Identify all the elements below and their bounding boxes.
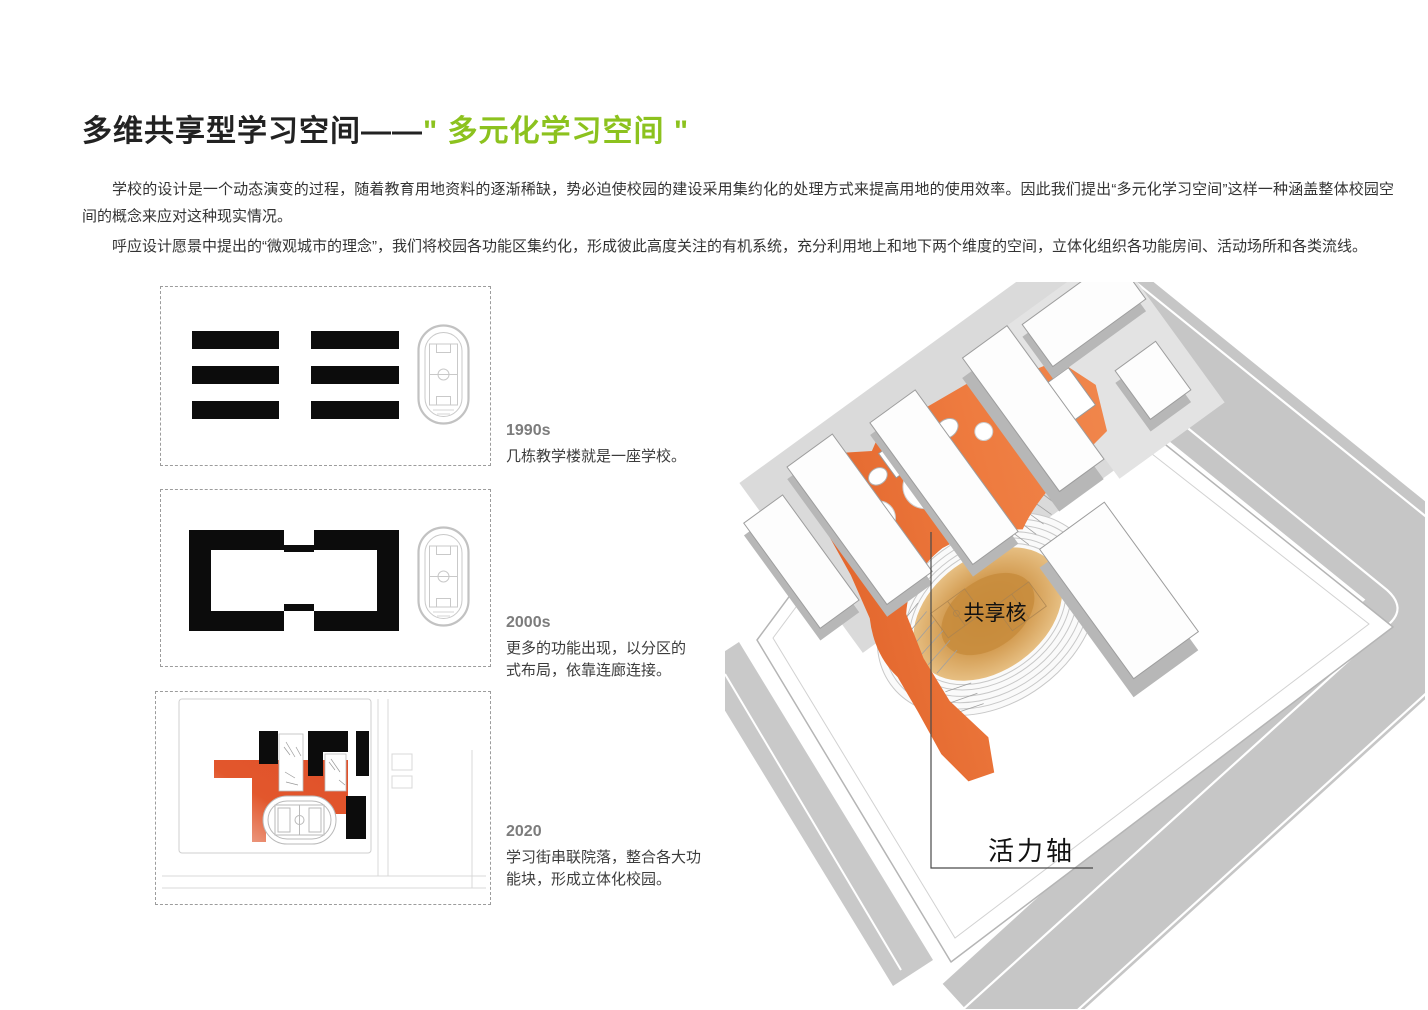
zoned-building-brackets <box>189 530 399 631</box>
era-label-2000s: 2000s <box>506 614 551 632</box>
diagram-1990s-bars <box>161 287 489 464</box>
era-desc-1990s: 几栋教学楼就是一座学校。 <box>506 446 716 468</box>
corridor-link <box>284 545 314 552</box>
era-label-2020: 2020 <box>506 823 542 841</box>
vitality-axis-label: 活力轴 <box>988 831 1075 868</box>
era-desc-2000s: 更多的功能出现，以分区的式布局，依靠连廊连接。 <box>506 638 692 682</box>
era-label-1990s: 1990s <box>506 422 551 440</box>
page-root: { "header": { "title_main": "多维共享型学习空间——… <box>0 0 1428 1010</box>
diagram-2000s-brackets <box>161 490 489 665</box>
running-track-icon <box>419 326 469 424</box>
corridor-link <box>284 604 314 611</box>
intro-paragraph-1: 学校的设计是一个动态演变的过程，随着教育用地资料的逐渐稀缺，势必迫使校园的建设采… <box>82 176 1394 230</box>
running-track-plan <box>263 796 336 844</box>
diagram-2020-siteplan <box>156 692 489 903</box>
running-track-icon <box>419 528 469 626</box>
title-main-text: 多维共享型学习空间—— <box>82 115 423 148</box>
campus-axonometric-illustration <box>725 282 1425 1009</box>
page-title: 多维共享型学习空间——" 多元化学习空间 " <box>82 106 689 150</box>
shared-core-label: 共享核 <box>930 597 1060 627</box>
timeline-figure-2000s <box>160 489 491 667</box>
timeline-figure-2020 <box>155 691 491 905</box>
timeline-figure-1990s <box>160 286 491 466</box>
intro-paragraph-2: 呼应设计愿景中提出的“微观城市的理念”，我们将校园各功能区集约化，形成彼此高度关… <box>82 233 1394 260</box>
school-building-bars <box>192 331 399 419</box>
title-accent-text: " 多元化学习空间 " <box>423 115 689 148</box>
era-desc-2020: 学习街串联院落，整合各大功能块，形成立体化校园。 <box>506 847 706 891</box>
